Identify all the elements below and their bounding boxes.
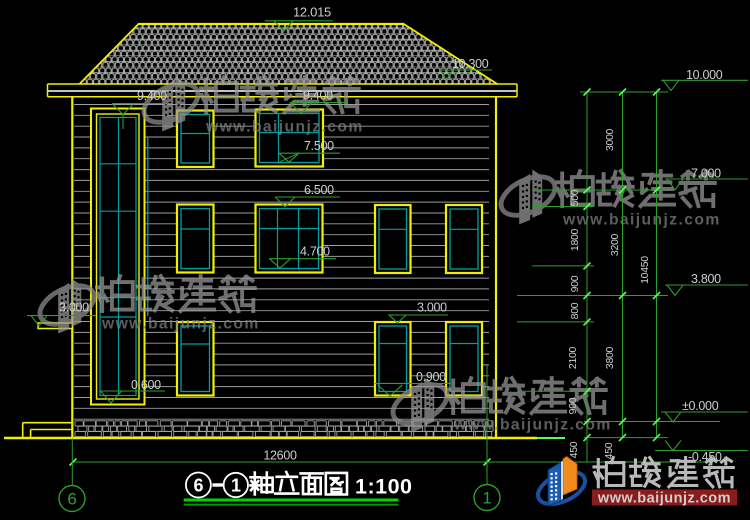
- svg-text:www.baijunjz.com: www.baijunjz.com: [453, 416, 612, 433]
- svg-text:3800: 3800: [604, 346, 616, 369]
- svg-text:3.800: 3.800: [691, 272, 721, 286]
- svg-text:10450: 10450: [639, 256, 651, 284]
- svg-text:10.300: 10.300: [452, 57, 489, 71]
- svg-text:900: 900: [567, 397, 579, 414]
- svg-text:450: 450: [568, 441, 580, 458]
- svg-text:www.baijunjz.com: www.baijunjz.com: [101, 315, 260, 332]
- svg-text:0.900: 0.900: [416, 370, 446, 384]
- svg-text:6: 6: [67, 490, 76, 509]
- svg-text:800: 800: [569, 302, 581, 319]
- svg-text:4.700: 4.700: [300, 245, 330, 259]
- svg-text:7.500: 7.500: [304, 139, 334, 153]
- svg-text:2100: 2100: [567, 346, 579, 369]
- svg-text:±0.000: ±0.000: [682, 399, 719, 413]
- svg-text:1:100: 1:100: [355, 475, 413, 499]
- svg-text:1: 1: [482, 489, 491, 508]
- svg-text:0.600: 0.600: [131, 378, 161, 392]
- svg-text:www.baijunjz.com: www.baijunjz.com: [597, 491, 731, 507]
- svg-text:3.000: 3.000: [59, 301, 89, 315]
- svg-text:500: 500: [569, 189, 581, 206]
- svg-text:3000: 3000: [604, 128, 616, 151]
- svg-text:1: 1: [231, 476, 241, 496]
- svg-text:3.000: 3.000: [417, 301, 447, 315]
- svg-text:9.400: 9.400: [137, 89, 167, 103]
- svg-text:10.000: 10.000: [686, 68, 723, 82]
- svg-text:www.baijunjz.com: www.baijunjz.com: [205, 118, 364, 135]
- svg-text:6.500: 6.500: [304, 183, 334, 197]
- svg-text:1800: 1800: [569, 228, 581, 251]
- svg-text:6: 6: [194, 476, 204, 496]
- svg-text:7.000: 7.000: [691, 167, 721, 181]
- svg-text:900: 900: [569, 275, 581, 292]
- svg-text:12.015: 12.015: [293, 5, 331, 20]
- svg-text:www.baijunjz.com: www.baijunjz.com: [562, 211, 721, 228]
- svg-text:12600: 12600: [263, 449, 297, 463]
- svg-text:9.400: 9.400: [303, 89, 333, 103]
- svg-text:3200: 3200: [609, 233, 621, 256]
